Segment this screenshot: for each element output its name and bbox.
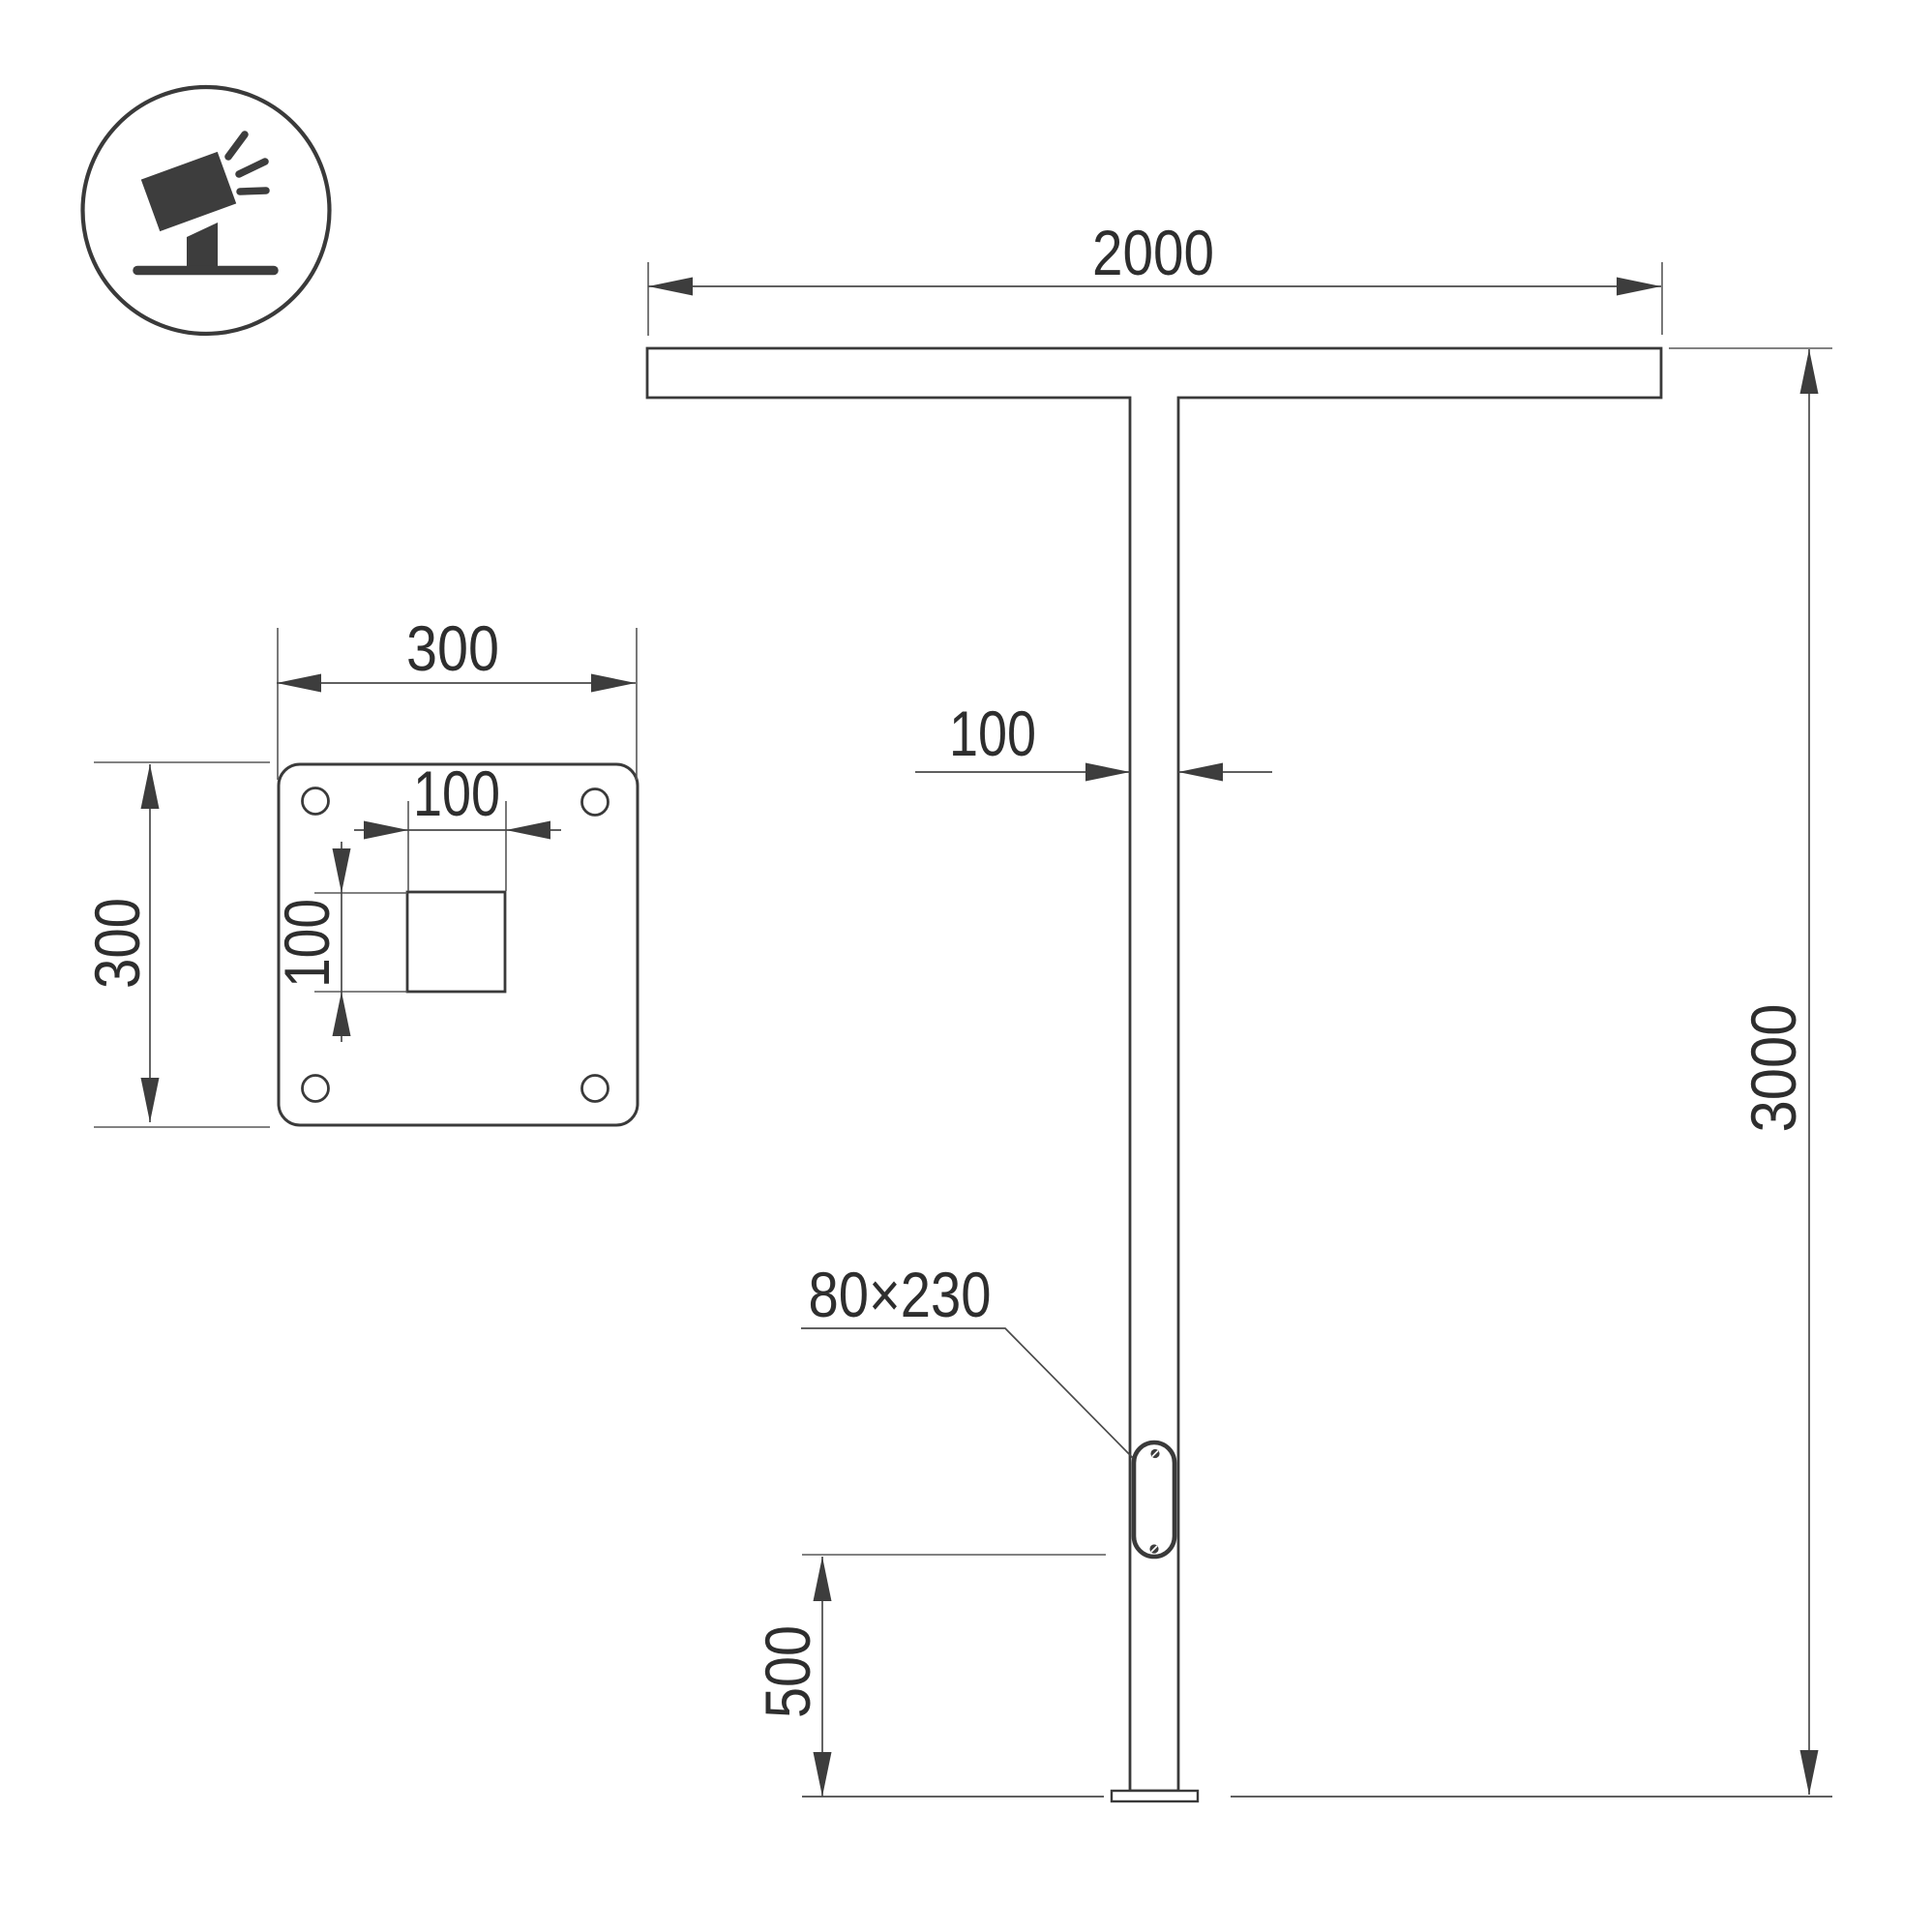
svg-text:100: 100 <box>413 758 500 829</box>
svg-text:100: 100 <box>949 698 1036 769</box>
svg-text:500: 500 <box>752 1625 823 1718</box>
svg-text:100: 100 <box>271 899 342 988</box>
svg-text:300: 300 <box>406 612 499 684</box>
svg-text:80×230: 80×230 <box>809 1259 992 1330</box>
svg-text:3000: 3000 <box>1738 1004 1809 1133</box>
svg-text:2000: 2000 <box>1092 217 1214 288</box>
svg-text:300: 300 <box>81 898 153 989</box>
